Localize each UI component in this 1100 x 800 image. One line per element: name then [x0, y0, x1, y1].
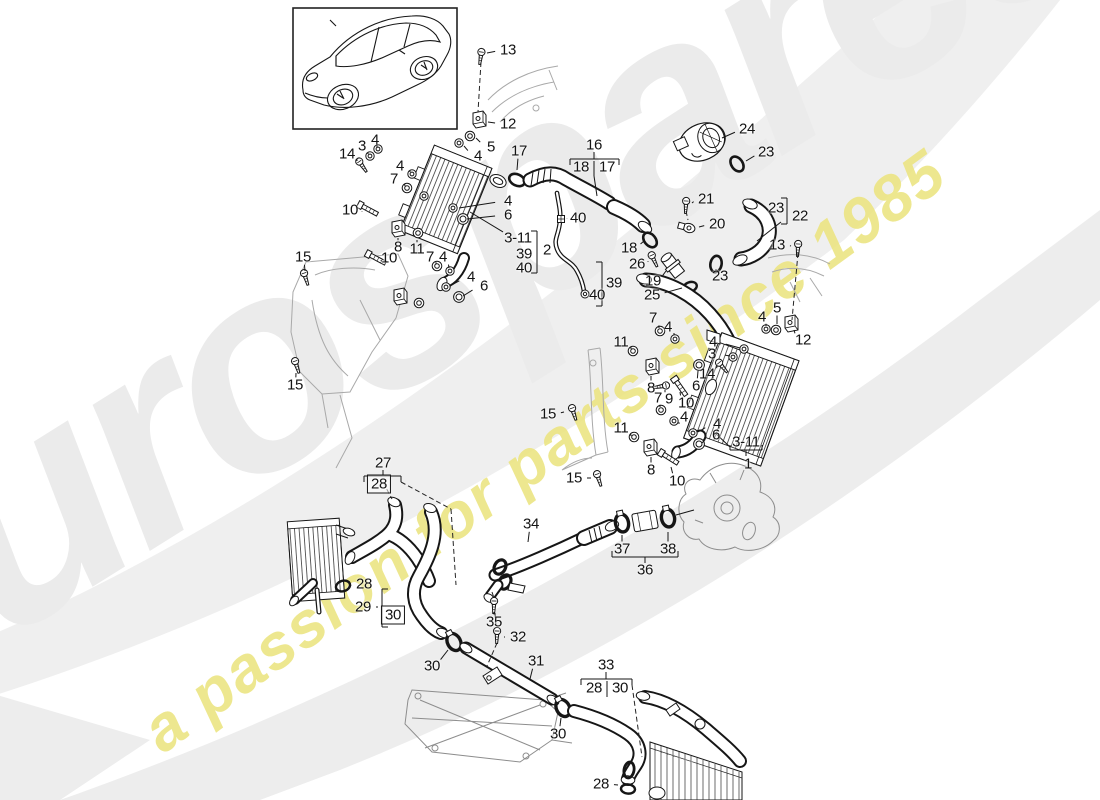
right-intercooler: [636, 273, 799, 466]
throttle-body-24: [671, 116, 746, 174]
clamp-38: [659, 504, 676, 528]
elbow-pipe-22: [731, 197, 769, 267]
hose-33: [574, 711, 640, 794]
o-ring-18: [640, 230, 659, 250]
bottom-right-intercooler: [636, 691, 742, 800]
sensor-20: [677, 221, 696, 234]
bottom-left-intercooler: [287, 518, 356, 612]
o-ring-28b: [621, 784, 636, 794]
hose-29-30: [414, 502, 464, 653]
pipe-31: [458, 641, 573, 719]
diagram-artwork: [0, 0, 1100, 800]
parts-diagram-page: eurospares a passion for parts since 198…: [0, 0, 1100, 800]
pressure-hose-16: [530, 169, 654, 235]
vent-hose-39: [556, 193, 589, 298]
pipe-34: [482, 519, 620, 604]
vehicle-thumbnail: [293, 8, 457, 129]
turbocharger-sketch: [679, 463, 779, 550]
o-ring-23: [728, 154, 747, 174]
